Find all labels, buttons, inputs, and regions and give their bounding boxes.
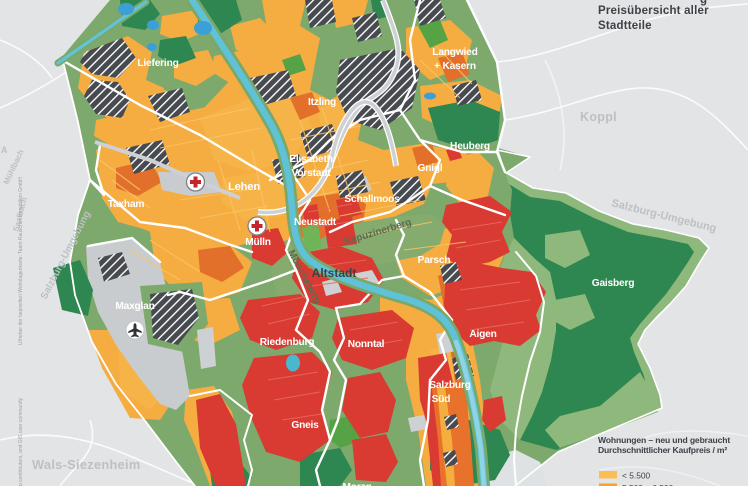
svg-text:Morzg: Morzg <box>343 482 372 486</box>
svg-text:p contributors, and GIS user c: p contributors, and GIS user community <box>18 397 24 486</box>
svg-text:Stadtteile: Stadtteile <box>598 20 652 32</box>
svg-text:+ Kasern: + Kasern <box>434 61 476 72</box>
svg-text:Vorstadt: Vorstadt <box>292 168 332 179</box>
svg-text:Süd: Süd <box>432 394 451 405</box>
svg-text:Aigen: Aigen <box>469 329 496 340</box>
svg-text:Wals-Siezenheim: Wals-Siezenheim <box>32 457 141 472</box>
svg-text:Lehen: Lehen <box>228 181 260 193</box>
svg-text:Mülln: Mülln <box>245 237 271 248</box>
svg-text:Langwied: Langwied <box>432 47 477 58</box>
svg-text:Elisabeth: Elisabeth <box>289 154 333 165</box>
svg-text:Schallmoos: Schallmoos <box>344 194 400 205</box>
svg-text:Gaisberg: Gaisberg <box>592 278 635 289</box>
svg-text:Wohnungen – neu und gebraucht: Wohnungen – neu und gebraucht <box>598 435 730 445</box>
svg-text:Taxham: Taxham <box>108 199 145 210</box>
svg-text:A: A <box>1 145 8 155</box>
svg-text:Durchschnittlicher Kaufpreis /: Durchschnittlicher Kaufpreis / m² <box>598 445 727 455</box>
svg-text:Riedenburg: Riedenburg <box>260 337 315 348</box>
svg-text:Neustadt: Neustadt <box>294 217 337 228</box>
svg-text:Nonntal: Nonntal <box>348 339 385 350</box>
svg-text:Heuberg: Heuberg <box>450 141 490 152</box>
svg-text:Urheber der bepixelten Wohnlag: Urheber der bepixelten Wohnlagenkarte: T… <box>18 177 24 345</box>
svg-text:Maxglan: Maxglan <box>115 301 154 312</box>
svg-text:< 5.500: < 5.500 <box>622 471 651 481</box>
svg-text:Koppl: Koppl <box>580 110 617 124</box>
svg-text:Parsch: Parsch <box>418 255 451 266</box>
svg-text:Salzburg: Salzburg <box>429 380 470 391</box>
svg-text:Gnigl: Gnigl <box>417 163 442 174</box>
svg-text:Preisübersicht aller: Preisübersicht aller <box>598 5 709 17</box>
svg-text:Itzling: Itzling <box>308 97 336 108</box>
svg-text:g: g <box>700 0 707 6</box>
svg-text:Liefering: Liefering <box>137 58 178 69</box>
svg-text:Altstadt: Altstadt <box>312 266 357 280</box>
svg-text:Gneis: Gneis <box>291 420 319 431</box>
